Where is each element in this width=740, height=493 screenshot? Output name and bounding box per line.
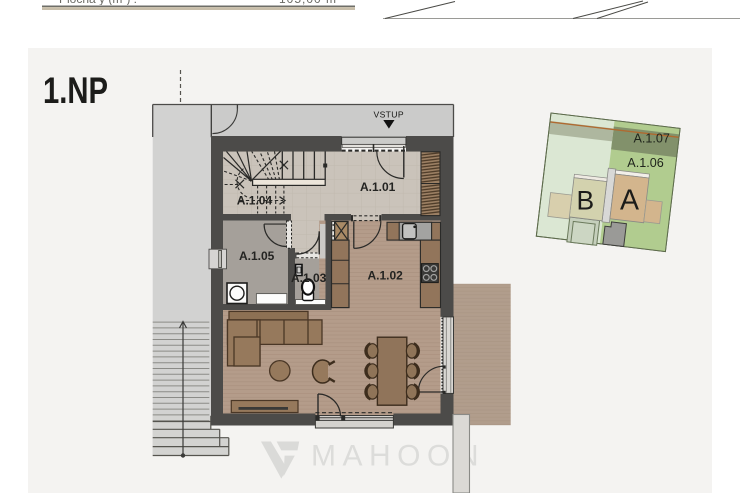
svg-text:A.1.01: A.1.01 [360,180,396,194]
svg-text:B: B [577,186,595,216]
svg-text:A.1.05: A.1.05 [239,249,275,263]
svg-text:A.1.07: A.1.07 [634,132,670,146]
svg-text:VSTUP: VSTUP [374,110,404,120]
svg-text:A.1.06: A.1.06 [627,156,663,170]
svg-text:A: A [620,185,639,217]
svg-text:A.1.04: A.1.04 [237,194,273,208]
svg-text:A.1.03: A.1.03 [291,271,327,285]
svg-text:A.1.02: A.1.02 [368,268,404,282]
